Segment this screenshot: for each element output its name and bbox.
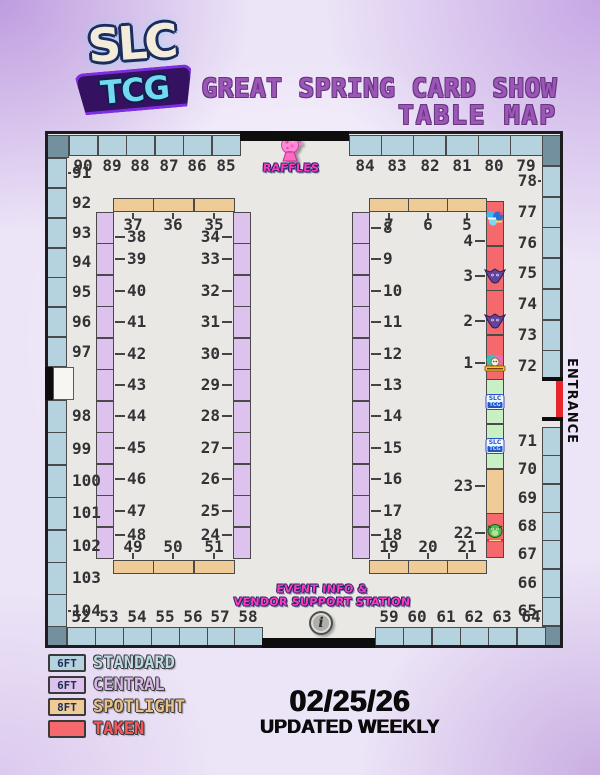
table-label: 62 — [464, 610, 483, 624]
corner-top-left — [47, 135, 69, 158]
table-label: 98 — [72, 409, 91, 423]
table-label: 46 — [127, 472, 146, 486]
table-62 — [460, 627, 489, 647]
tick-mark — [115, 236, 125, 238]
table-label: 92 — [72, 196, 91, 210]
table-label: 80 — [484, 159, 503, 173]
table-label: 17 — [383, 504, 402, 518]
table-103 — [47, 562, 67, 595]
tick-mark — [222, 321, 232, 323]
table-label: 75 — [518, 266, 537, 280]
legend-row-taken: TAKEN — [48, 720, 185, 738]
legend-label-taken: TAKEN — [93, 719, 144, 739]
tick-mark — [475, 240, 485, 242]
tick-mark — [222, 478, 232, 480]
table-43 — [96, 369, 114, 401]
table-100 — [47, 465, 67, 498]
table-label: 59 — [379, 610, 398, 624]
table-label: 30 — [201, 347, 220, 361]
table-40 — [96, 275, 114, 307]
tick-mark — [371, 510, 381, 512]
table-label: 6 — [423, 218, 433, 232]
table-label: 14 — [383, 409, 402, 423]
table-31 — [233, 306, 251, 338]
table-24 — [233, 527, 251, 559]
table-32 — [233, 275, 251, 307]
table-17 — [352, 495, 370, 527]
table-label: 76 — [518, 236, 537, 250]
table-label: 77 — [518, 205, 537, 219]
slc-mini-line2: TCG — [487, 402, 502, 408]
table-21 — [447, 560, 487, 574]
table-88 — [126, 135, 155, 156]
tick-mark — [115, 510, 125, 512]
table-96 — [47, 307, 67, 337]
slc-tcg-mini-logo: SLCTCG — [486, 394, 505, 410]
table-85 — [212, 135, 241, 156]
tick-mark — [371, 321, 381, 323]
table-label: 68 — [518, 519, 537, 533]
table-label: 33 — [201, 252, 220, 266]
entrance-door-marker — [556, 381, 563, 417]
table-55 — [151, 627, 180, 647]
table-49 — [113, 560, 154, 574]
table-label: 27 — [201, 441, 220, 455]
tick-mark — [68, 610, 71, 612]
table-78 — [542, 166, 561, 197]
table-label: 88 — [130, 159, 149, 173]
table-83 — [381, 135, 414, 156]
legend: 6FTSTANDARD6FTCENTRAL8FTSPOTLIGHTTAKEN — [48, 654, 185, 738]
legend-row-standard: 6FTSTANDARD — [48, 654, 185, 672]
table-11 — [352, 306, 370, 338]
table-35 — [194, 198, 235, 212]
table-label: 3 — [463, 269, 473, 283]
table-label: 86 — [187, 159, 206, 173]
table-36 — [153, 198, 194, 212]
table-label: 29 — [201, 378, 220, 392]
table-label: 20 — [418, 540, 437, 554]
tick-mark — [222, 258, 232, 260]
table-label: 65 — [518, 604, 537, 618]
table-51 — [194, 560, 235, 574]
tick-mark — [222, 384, 232, 386]
tick-mark — [538, 180, 541, 182]
table-label: 61 — [436, 610, 455, 624]
tick-mark — [115, 321, 125, 323]
page-title: GREAT SPRING CARD SHOW TABLE MAP — [127, 76, 557, 129]
table-75 — [542, 258, 561, 289]
table-70 — [542, 455, 561, 484]
table-label: 67 — [518, 547, 537, 561]
table-label: 101 — [72, 506, 101, 520]
table-69 — [542, 484, 561, 513]
table-50 — [153, 560, 194, 574]
table-label: 83 — [387, 159, 406, 173]
table-82 — [413, 135, 446, 156]
table-80 — [478, 135, 511, 156]
table-95 — [47, 277, 67, 307]
table-label: 45 — [127, 441, 146, 455]
table-label: 82 — [420, 159, 439, 173]
tick-mark — [371, 447, 381, 449]
table-59 — [375, 627, 404, 647]
table-5 — [447, 198, 487, 212]
table-77 — [542, 197, 561, 228]
tick-mark — [115, 353, 125, 355]
tick-mark — [222, 447, 232, 449]
table-label: 91 — [72, 166, 91, 180]
tick-mark — [115, 415, 125, 417]
info-station-label-line2: VENDOR SUPPORT STATION — [233, 596, 411, 609]
table-label: 53 — [99, 610, 118, 624]
table-label: 63 — [492, 610, 511, 624]
table-label: 57 — [210, 610, 229, 624]
table-90 — [69, 135, 98, 156]
table-label: 8 — [383, 221, 393, 235]
table-13 — [352, 369, 370, 401]
table-label: 9 — [383, 252, 393, 266]
tick-mark — [371, 415, 381, 417]
table-38 — [96, 212, 114, 244]
table-label: 54 — [127, 610, 146, 624]
left-door-gap — [53, 367, 74, 400]
table-label: 103 — [72, 571, 101, 585]
table-87 — [155, 135, 184, 156]
table-34 — [233, 212, 251, 244]
table-label: 71 — [518, 434, 537, 448]
corner-top-right — [542, 135, 561, 166]
tick-mark — [371, 478, 381, 480]
table-45 — [96, 432, 114, 464]
table-label: 84 — [355, 159, 374, 173]
table-label: 12 — [383, 347, 402, 361]
table-97 — [47, 337, 67, 367]
logo-slc-text: SLC — [71, 16, 192, 70]
table-52 — [67, 627, 96, 647]
top-wall-gap — [240, 131, 349, 141]
table-label: 81 — [452, 159, 471, 173]
table-label: 60 — [407, 610, 426, 624]
table-label: 22 — [454, 526, 473, 540]
table-label: 42 — [127, 347, 146, 361]
table-label: 2 — [463, 314, 473, 328]
table-60 — [403, 627, 432, 647]
table-9 — [352, 243, 370, 275]
table-29 — [233, 369, 251, 401]
table-label: 93 — [72, 226, 91, 240]
table-label: 31 — [201, 315, 220, 329]
table-label: 55 — [155, 610, 174, 624]
table-93 — [47, 218, 67, 248]
info-icon: i — [309, 611, 333, 635]
table-label: 78 — [518, 174, 537, 188]
table-76 — [542, 227, 561, 258]
table-89 — [98, 135, 127, 156]
table-label: 56 — [183, 610, 202, 624]
table-30 — [233, 338, 251, 370]
table-label: 4 — [463, 234, 473, 248]
table-86 — [183, 135, 212, 156]
table-label: 94 — [72, 255, 91, 269]
map-date: 02/25/26 — [240, 686, 460, 717]
table-label: 10 — [383, 284, 402, 298]
tick-mark — [68, 172, 71, 174]
table-label: 70 — [518, 462, 537, 476]
tick-mark — [222, 353, 232, 355]
table-42 — [96, 338, 114, 370]
table-label: 26 — [201, 472, 220, 486]
table-15 — [352, 432, 370, 464]
table-41 — [96, 306, 114, 338]
table-71 — [542, 427, 561, 456]
vendor-logo-sprite-purple-creature — [484, 312, 506, 330]
table-73 — [542, 320, 561, 351]
table-label: 43 — [127, 378, 146, 392]
table-23 — [486, 469, 504, 514]
table-label: 25 — [201, 504, 220, 518]
entrance-wall-stub-bottom — [542, 417, 563, 421]
legend-row-spotlight: 8FTSPOTLIGHT — [48, 698, 185, 716]
tick-mark — [222, 290, 232, 292]
table-102 — [47, 530, 67, 563]
table-label: 15 — [383, 441, 402, 455]
legend-swatch-central: 6FT — [48, 676, 86, 694]
table-label: 44 — [127, 409, 146, 423]
update-note: UPDATED WEEKLY — [240, 717, 460, 738]
table-label: 16 — [383, 472, 402, 486]
table-label: 34 — [201, 230, 220, 244]
table-39 — [96, 243, 114, 275]
legend-swatch-standard: 6FT — [48, 654, 86, 672]
tick-mark — [475, 485, 485, 487]
table-label: 18 — [383, 528, 402, 542]
table-44 — [96, 401, 114, 433]
table-label: 13 — [383, 378, 402, 392]
table-56 — [179, 627, 208, 647]
tick-mark — [371, 353, 381, 355]
legend-row-central: 6FTCENTRAL — [48, 676, 185, 694]
table-label: 38 — [127, 230, 146, 244]
table-63 — [488, 627, 517, 647]
table-label: 87 — [159, 159, 178, 173]
tick-mark — [371, 534, 381, 536]
table-33 — [233, 243, 251, 275]
vendor-logo-sprite-purple-creature — [484, 267, 506, 285]
slc-mini-line2: TCG — [487, 446, 502, 452]
table-label: 69 — [518, 491, 537, 505]
tick-mark — [222, 236, 232, 238]
tick-mark — [222, 534, 232, 536]
update-info: 02/25/26 UPDATED WEEKLY — [240, 686, 460, 738]
table-54 — [123, 627, 152, 647]
legend-label-central: CENTRAL — [93, 675, 165, 695]
table-10 — [352, 275, 370, 307]
tick-mark — [115, 534, 125, 536]
table-label: 1 — [463, 356, 473, 370]
table-61 — [432, 627, 461, 647]
table-19 — [369, 560, 409, 574]
table-16 — [352, 464, 370, 496]
table-6 — [408, 198, 448, 212]
table-28 — [233, 401, 251, 433]
table-81 — [446, 135, 479, 156]
tick-mark — [115, 478, 125, 480]
tick-mark — [222, 510, 232, 512]
table-label: 73 — [518, 328, 537, 342]
tick-mark — [371, 227, 381, 229]
table-101 — [47, 497, 67, 530]
table-74 — [542, 289, 561, 320]
table-label: 85 — [216, 159, 235, 173]
table-label: 24 — [201, 528, 220, 542]
table-label: 99 — [72, 442, 91, 456]
table-66 — [542, 569, 561, 598]
slc-tcg-mini-logo: SLCTCG — [486, 438, 505, 454]
table-37 — [113, 198, 154, 212]
legend-swatch-taken — [48, 720, 86, 738]
tick-mark — [371, 258, 381, 260]
table-68 — [542, 512, 561, 541]
vendor-logo-sprite-rainbow-vendor-logo — [483, 353, 507, 373]
table-58 — [234, 627, 263, 647]
legend-label-standard: STANDARD — [93, 653, 175, 673]
table-label: 97 — [72, 345, 91, 359]
bottom-wall-gap — [262, 638, 375, 648]
tick-mark — [371, 290, 381, 292]
entrance-wall-stub-top — [542, 377, 563, 381]
table-27 — [233, 432, 251, 464]
table-67 — [542, 540, 561, 569]
table-label: 72 — [518, 359, 537, 373]
table-label: 102 — [72, 539, 101, 553]
table-91 — [47, 158, 67, 188]
table-26 — [233, 464, 251, 496]
table-map-poster: SLC TCG GREAT SPRING CARD SHOW TABLE MAP… — [0, 0, 600, 775]
table-92 — [47, 188, 67, 218]
table-label: 74 — [518, 297, 537, 311]
table-98 — [47, 400, 67, 433]
table-label: 32 — [201, 284, 220, 298]
table-7 — [369, 198, 409, 212]
table-84 — [349, 135, 382, 156]
legend-swatch-spotlight: 8FT — [48, 698, 86, 716]
table-14 — [352, 401, 370, 433]
tick-mark — [115, 384, 125, 386]
table-64 — [517, 627, 546, 647]
table-label: 39 — [127, 252, 146, 266]
legend-label-spotlight: SPOTLIGHT — [93, 697, 185, 717]
table-label: 47 — [127, 504, 146, 518]
table-label: 41 — [127, 315, 146, 329]
table-label: 104 — [72, 604, 101, 618]
table-label: 66 — [518, 576, 537, 590]
tick-mark — [115, 258, 125, 260]
table-20 — [408, 560, 448, 574]
table-25 — [233, 495, 251, 527]
table-57 — [207, 627, 236, 647]
table-label: 11 — [383, 315, 402, 329]
floor-map: 9089888786858483828180795253545556575859… — [45, 131, 563, 648]
table-65 — [542, 597, 561, 626]
tick-mark — [222, 415, 232, 417]
table-label: 40 — [127, 284, 146, 298]
table-label: 96 — [72, 315, 91, 329]
table-label: 50 — [163, 540, 182, 554]
table-104 — [47, 594, 67, 627]
info-station-label-line1: EVENT INFO & — [276, 583, 368, 596]
table-8 — [352, 212, 370, 244]
table-label: 95 — [72, 285, 91, 299]
table-79 — [510, 135, 543, 156]
vendor-logo-sprite-blue-vendor-logo — [484, 211, 506, 228]
tick-mark — [538, 610, 541, 612]
raffles-label: RAFFLES — [262, 162, 319, 175]
vendor-logo-sprite-green-creature — [484, 523, 506, 543]
tick-mark — [371, 384, 381, 386]
table-label: 58 — [238, 610, 257, 624]
tick-mark — [115, 447, 125, 449]
table-94 — [47, 248, 67, 278]
table-label: 23 — [454, 479, 473, 493]
table-18 — [352, 527, 370, 559]
table-label: 28 — [201, 409, 220, 423]
title-line-2: TABLE MAP — [127, 103, 557, 129]
table-label: 48 — [127, 528, 146, 542]
left-door-marker — [45, 367, 53, 400]
table-label: 21 — [457, 540, 476, 554]
entrance-label: ENTRANCE — [564, 358, 579, 448]
table-label: 36 — [163, 218, 182, 232]
table-label: 5 — [462, 218, 472, 232]
corner-bottom-left — [47, 626, 67, 646]
tick-mark — [115, 290, 125, 292]
table-label: 89 — [102, 159, 121, 173]
title-line-1: GREAT SPRING CARD SHOW — [127, 76, 557, 103]
table-12 — [352, 338, 370, 370]
table-label: 100 — [72, 474, 101, 488]
table-99 — [47, 432, 67, 465]
table-53 — [95, 627, 124, 647]
